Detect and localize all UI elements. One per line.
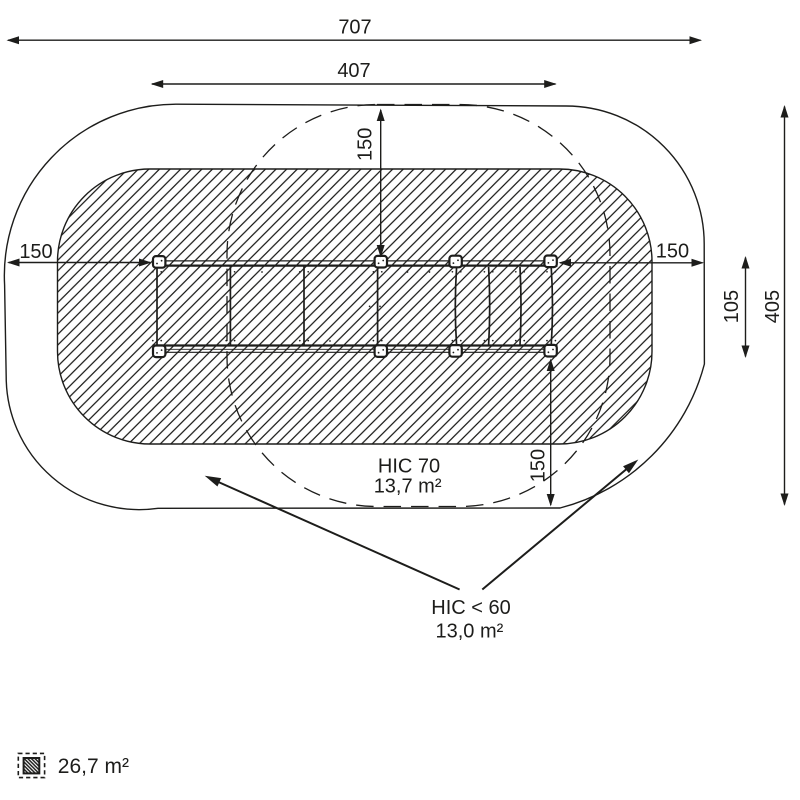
svg-text:150: 150 bbox=[19, 241, 52, 263]
svg-text:150: 150 bbox=[528, 449, 550, 482]
svg-text:150: 150 bbox=[355, 128, 377, 161]
svg-text:405: 405 bbox=[762, 290, 784, 323]
svg-text:HIC < 60: HIC < 60 bbox=[431, 597, 510, 619]
svg-text:HIC 70: HIC 70 bbox=[378, 456, 440, 478]
svg-text:707: 707 bbox=[338, 17, 371, 39]
svg-text:407: 407 bbox=[337, 60, 370, 82]
svg-text:13,0 m²: 13,0 m² bbox=[435, 621, 503, 643]
svg-text:26,7 m²: 26,7 m² bbox=[58, 755, 129, 778]
svg-text:150: 150 bbox=[656, 241, 689, 263]
svg-text:105: 105 bbox=[721, 290, 743, 323]
svg-text:13,7 m²: 13,7 m² bbox=[374, 476, 442, 498]
